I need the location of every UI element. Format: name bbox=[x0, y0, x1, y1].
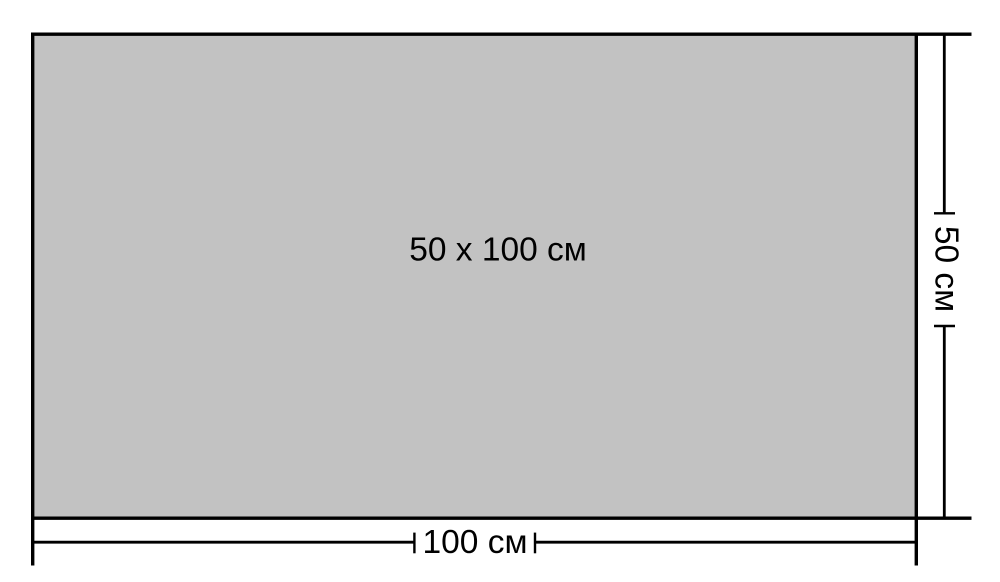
svg-text:100 см: 100 см bbox=[423, 524, 528, 561]
svg-text:50 см: 50 см bbox=[927, 226, 964, 312]
svg-text:50 x 100 см: 50 x 100 см bbox=[409, 232, 587, 269]
